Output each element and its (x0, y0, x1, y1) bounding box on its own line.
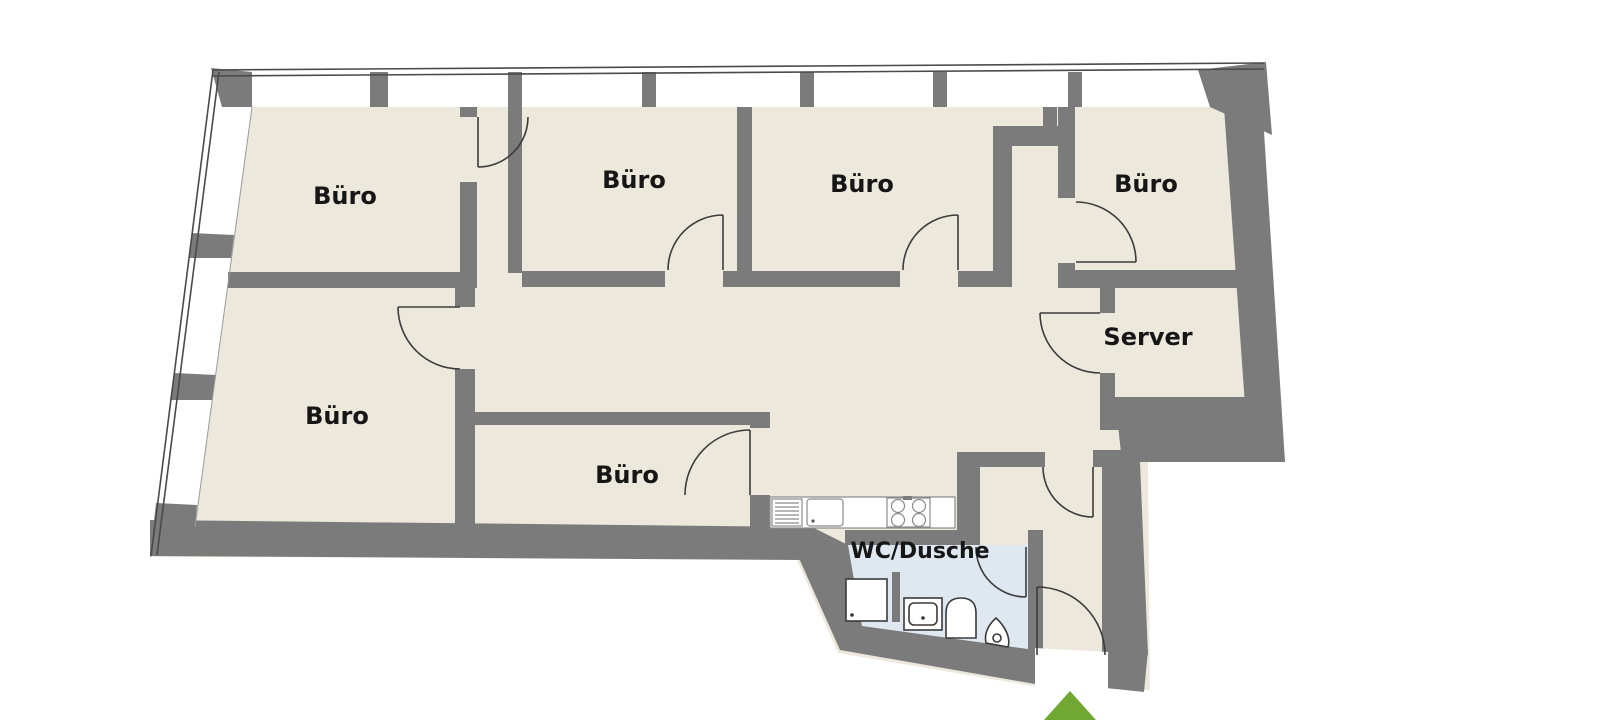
entrance-arrow-icon (1044, 691, 1096, 720)
wall-vestibule-right (1102, 462, 1148, 655)
wall-pier (933, 72, 947, 107)
wall-nook-stub (1043, 107, 1057, 131)
wall-room3-right (993, 146, 1012, 287)
wall-room1-right-b (460, 182, 477, 288)
label-buero-top-mid-right: Büro (830, 170, 894, 198)
wall-server-left-b (1100, 373, 1115, 430)
wall-room4-left-b (1058, 263, 1075, 288)
wall-room6-right-a (750, 412, 770, 428)
wall-room4-left-a (1058, 107, 1075, 198)
wall-bottom-outer (150, 520, 814, 560)
wall-pier (370, 72, 388, 107)
dishwasher-icon (772, 499, 802, 526)
floor-plan: Büro Büro Büro Büro Server Büro Büro WC/… (0, 0, 1600, 720)
label-buero-bottom-center: Büro (595, 461, 659, 489)
wall-room6-top (455, 412, 770, 425)
wall-below-room4 (1058, 270, 1245, 288)
wall-pier (1068, 72, 1082, 107)
wall-block-bottom-outer (1118, 425, 1285, 462)
wall-bigroom-right-b (455, 369, 475, 528)
entrance-door-gap (1035, 648, 1108, 690)
label-buero-top-right: Büro (1114, 170, 1178, 198)
wall-below-room1 (228, 272, 477, 288)
wall-room2-room3 (737, 107, 752, 271)
label-buero-top-left: Büro (313, 182, 377, 210)
label-wc-dusche: WC/Dusche (850, 539, 989, 564)
label-buero-top-mid-left: Büro (602, 166, 666, 194)
wall-vestibule-door-stub (1093, 450, 1135, 467)
toilet-icon (946, 598, 976, 638)
wall-server-left-a (1100, 288, 1115, 313)
wall-room6-right-b (750, 495, 770, 528)
wall-bigroom-right-a (455, 287, 475, 307)
floor-plan-canvas: Büro Büro Büro Büro Server Büro Büro WC/… (0, 0, 1600, 720)
wc-partition-wall (892, 572, 900, 622)
wall-rooms23-bottom-a (522, 271, 665, 287)
shower-icon (846, 579, 887, 621)
kitchenette (770, 496, 955, 528)
label-server: Server (1103, 323, 1192, 351)
wall-pier (508, 72, 522, 107)
wall-room1-right-a (460, 107, 477, 117)
stove-icon (887, 496, 930, 527)
window-line-top-outer (213, 63, 1264, 70)
label-buero-left: Büro (305, 402, 369, 430)
wall-room2-left (508, 107, 522, 273)
wall-wc-vestibule (1028, 530, 1043, 654)
wall-vestibule-corner (1102, 650, 1148, 692)
wall-pier (642, 72, 656, 107)
wall-rooms23-bottom-b (723, 271, 900, 287)
wall-kitchen-vestibule (957, 452, 980, 545)
kitchen-sink-icon (807, 499, 843, 526)
wall-pier (800, 72, 814, 107)
washbasin-icon (904, 598, 942, 630)
